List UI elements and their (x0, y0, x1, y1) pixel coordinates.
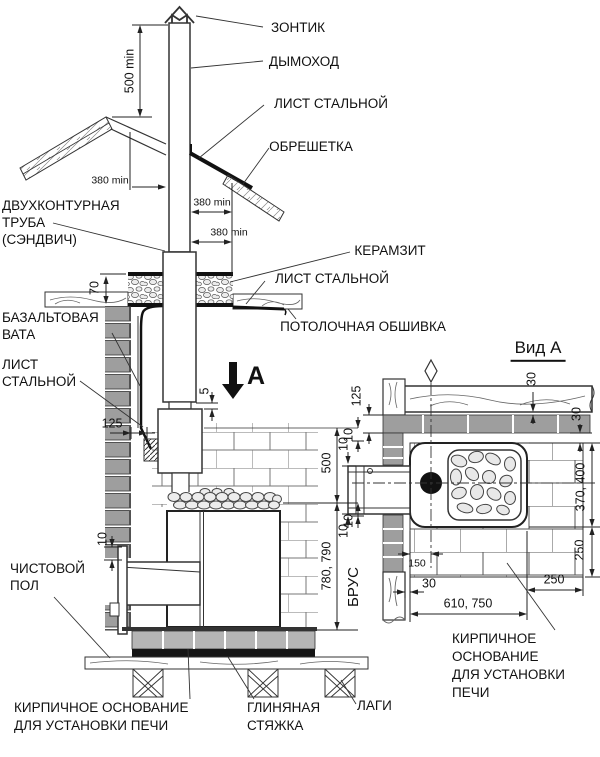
label-steel-sheet-wall-line2: СТАЛЬНОЙ (2, 374, 76, 390)
dim-10-c: 10 (337, 437, 352, 451)
view-a-title: Вид А (511, 338, 566, 362)
foundation (85, 627, 368, 697)
chimney-pipe (158, 7, 202, 498)
label-steel-sheet-wall-line1: ЛИСТ (2, 357, 38, 373)
dim-250-right: 250 (573, 540, 588, 561)
label-steel-sheet-ceiling: ЛИСТ СТАЛЬНОЙ (275, 271, 389, 287)
dim-380min-3: 380 min (210, 227, 247, 240)
label-finished-floor-line2: ПОЛ (10, 578, 39, 594)
label-brick-base-right-line3: ДЛЯ УСТАНОВКИ (452, 667, 565, 683)
view-direction-letter: А (247, 361, 265, 391)
label-clay-screed-line2: СТЯЖКА (247, 718, 303, 734)
label-brus: БРУС (345, 567, 363, 607)
label-brick-base-right-line2: ОСНОВАНИЕ (452, 649, 539, 665)
label-brick-base-right-line1: КИРПИЧНОЕ (452, 631, 536, 647)
label-brick-base-right-line4: ПЕЧИ (452, 685, 489, 701)
dim-150: 150 (408, 558, 426, 571)
dim-70: 70 (88, 281, 103, 295)
label-finished-floor-line1: ЧИСТОВОЙ (10, 561, 85, 577)
firebox-channel (122, 562, 200, 605)
dim-500min: 500 min (123, 49, 138, 93)
floor-boards (85, 657, 368, 669)
dim-30-bottom: 30 (422, 577, 436, 592)
label-basalt-line2: ВАТА (2, 327, 35, 343)
chimney-cap-icon (165, 7, 194, 23)
dim-30-right: 30 (570, 407, 585, 421)
dim-500: 500 (320, 451, 335, 476)
dim-125-elevation: 125 (102, 417, 123, 432)
label-dymohod: ДЫМОХОД (269, 54, 339, 70)
dim-610-750: 610, 750 (444, 597, 493, 612)
pipe-axis-icon (425, 360, 437, 382)
dim-5: 5 (198, 388, 213, 395)
dim-780-790: 780, 790 (320, 540, 335, 593)
dim-250-bottom: 250 (544, 573, 565, 588)
timber-post (383, 572, 405, 620)
stove-elevation (110, 489, 282, 635)
label-ceiling-sheathing: ПОТОЛОЧНАЯ ОБШИВКА (280, 319, 446, 335)
label-basalt-line1: БАЗАЛЬТОВАЯ (2, 310, 99, 326)
dim-10-door: 10 (96, 532, 111, 546)
dim-370-400: 370, 400 (574, 463, 589, 512)
label-sandwich-line2: ТРУБА (2, 215, 45, 231)
dim-380min-1: 380 min (91, 175, 128, 188)
view-direction-arrow-icon (222, 362, 244, 399)
firebox-door (118, 546, 127, 634)
label-steel-sheet-roof: ЛИСТ СТАЛЬНОЙ (274, 96, 388, 112)
label-obreshetka: ОБРЕШЕТКА (269, 139, 353, 155)
corner-post (383, 379, 405, 415)
dim-30-top: 30 (525, 372, 540, 386)
log-wall (404, 386, 592, 412)
label-lagi: ЛАГИ (357, 698, 392, 714)
label-zontik: ЗОНТИК (271, 20, 325, 36)
label-sandwich-line3: (СЭНДВИЧ) (2, 232, 77, 248)
label-clay-screed-line1: ГЛИНЯНАЯ (247, 700, 320, 716)
dim-380min-2: 380 min (193, 197, 230, 210)
technical-drawing: ЗОНТИК ДЫМОХОД ЛИСТ СТАЛЬНОЙ ОБРЕШЕТКА Д… (0, 0, 600, 757)
label-sandwich-line1: ДВУХКОНТУРНАЯ (2, 198, 120, 214)
dim-125-view: 125 (350, 386, 365, 407)
dim-10-d: 10 (337, 524, 352, 538)
label-brick-base-left-line2: ДЛЯ УСТАНОВКИ ПЕЧИ (14, 718, 168, 734)
clay-screed (132, 649, 315, 657)
label-keramzit: КЕРАМЗИТ (354, 243, 425, 259)
label-brick-base-left-line1: КИРПИЧНОЕ ОСНОВАНИЕ (14, 700, 189, 716)
